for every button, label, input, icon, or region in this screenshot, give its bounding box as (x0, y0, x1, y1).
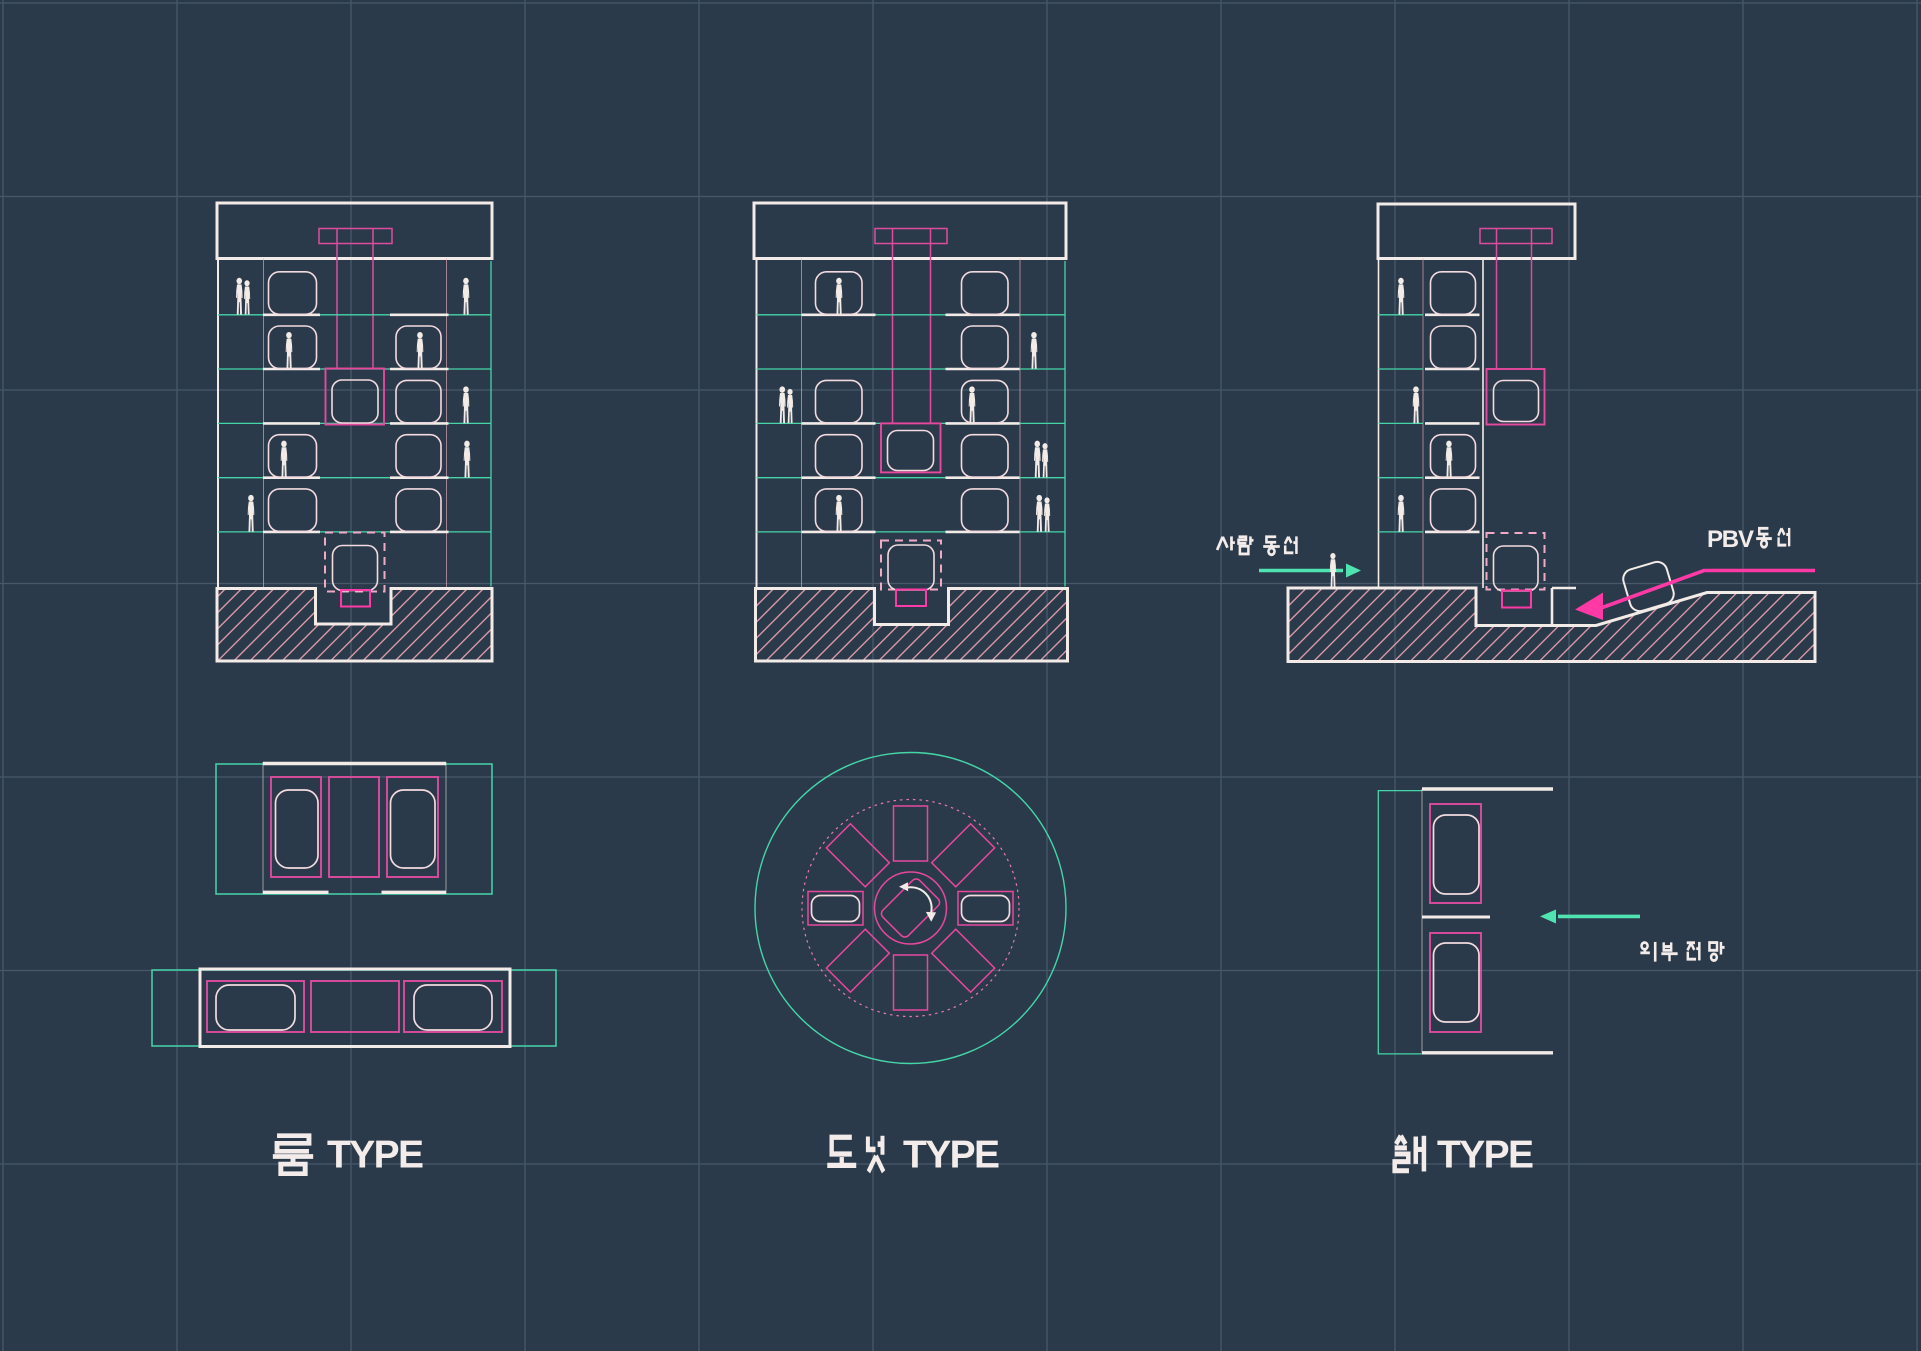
svg-text:TYPE: TYPE (903, 1134, 999, 1177)
svg-text:PBV: PBV (1707, 526, 1754, 553)
svg-text:TYPE: TYPE (327, 1134, 423, 1177)
svg-text:TYPE: TYPE (1437, 1134, 1533, 1177)
